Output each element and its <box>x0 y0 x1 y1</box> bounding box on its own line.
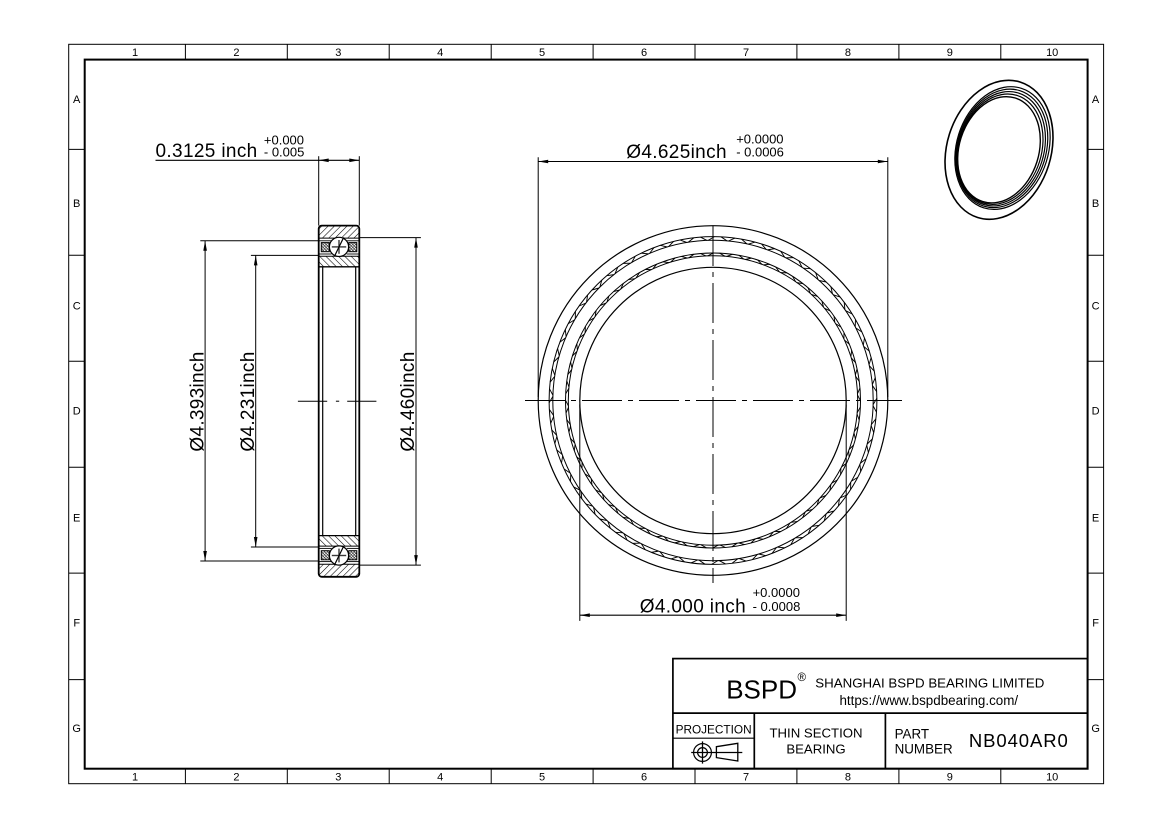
svg-text:BSPD: BSPD <box>726 675 797 705</box>
svg-text:F: F <box>73 618 80 630</box>
svg-text:5: 5 <box>539 772 545 784</box>
svg-text:+0.0000: +0.0000 <box>753 585 800 600</box>
svg-text:B: B <box>73 198 80 210</box>
svg-text:9: 9 <box>947 47 953 59</box>
svg-text:4: 4 <box>437 47 443 59</box>
svg-text:6: 6 <box>641 47 647 59</box>
svg-text:®: ® <box>798 672 807 684</box>
svg-text:A: A <box>73 94 81 106</box>
svg-text:1: 1 <box>132 47 138 59</box>
svg-text:SHANGHAI BSPD BEARING LIMITED: SHANGHAI BSPD BEARING LIMITED <box>815 676 1044 691</box>
svg-text:10: 10 <box>1046 47 1058 59</box>
svg-text:F: F <box>1092 618 1099 630</box>
svg-text:Ø4.393inch: Ø4.393inch <box>187 351 208 451</box>
svg-text:PROJECTION: PROJECTION <box>676 723 752 737</box>
svg-text:NB040AR0: NB040AR0 <box>969 730 1069 751</box>
svg-text:C: C <box>73 301 81 313</box>
svg-text:C: C <box>1092 301 1100 313</box>
svg-text:4: 4 <box>437 772 443 784</box>
svg-text:Ø4.000 inch: Ø4.000 inch <box>640 597 746 618</box>
svg-text:Ø4.625inch: Ø4.625inch <box>626 142 727 163</box>
svg-text:0.3125 inch: 0.3125 inch <box>156 141 258 162</box>
svg-text:- 0.0008: - 0.0008 <box>753 599 801 614</box>
svg-text:9: 9 <box>947 772 953 784</box>
svg-text:2: 2 <box>233 47 239 59</box>
svg-text:E: E <box>1092 513 1099 525</box>
svg-text:PART: PART <box>895 726 929 741</box>
svg-text:NUMBER: NUMBER <box>895 741 953 756</box>
svg-text:5: 5 <box>539 47 545 59</box>
svg-text:8: 8 <box>845 47 851 59</box>
svg-text:3: 3 <box>335 772 341 784</box>
svg-text:G: G <box>72 723 81 735</box>
svg-text:A: A <box>1092 94 1100 106</box>
svg-text:D: D <box>73 406 81 418</box>
svg-text:BEARING: BEARING <box>786 742 845 757</box>
svg-text:8: 8 <box>845 772 851 784</box>
svg-text:- 0.0006: - 0.0006 <box>736 145 784 160</box>
svg-text:- 0.005: - 0.005 <box>264 144 304 159</box>
svg-text:https://www.bspdbearing.com/: https://www.bspdbearing.com/ <box>839 693 1018 708</box>
svg-text:10: 10 <box>1046 772 1058 784</box>
svg-text:Ø4.231inch: Ø4.231inch <box>238 351 259 451</box>
svg-text:3: 3 <box>335 47 341 59</box>
svg-text:THIN SECTION: THIN SECTION <box>769 725 862 740</box>
svg-text:7: 7 <box>743 47 749 59</box>
svg-text:Ø4.460inch: Ø4.460inch <box>398 351 419 451</box>
svg-text:G: G <box>1091 723 1100 735</box>
svg-text:2: 2 <box>233 772 239 784</box>
svg-text:1: 1 <box>132 772 138 784</box>
svg-text:E: E <box>73 513 80 525</box>
svg-text:6: 6 <box>641 772 647 784</box>
svg-text:7: 7 <box>743 772 749 784</box>
svg-text:B: B <box>1092 198 1099 210</box>
svg-text:D: D <box>1092 406 1100 418</box>
